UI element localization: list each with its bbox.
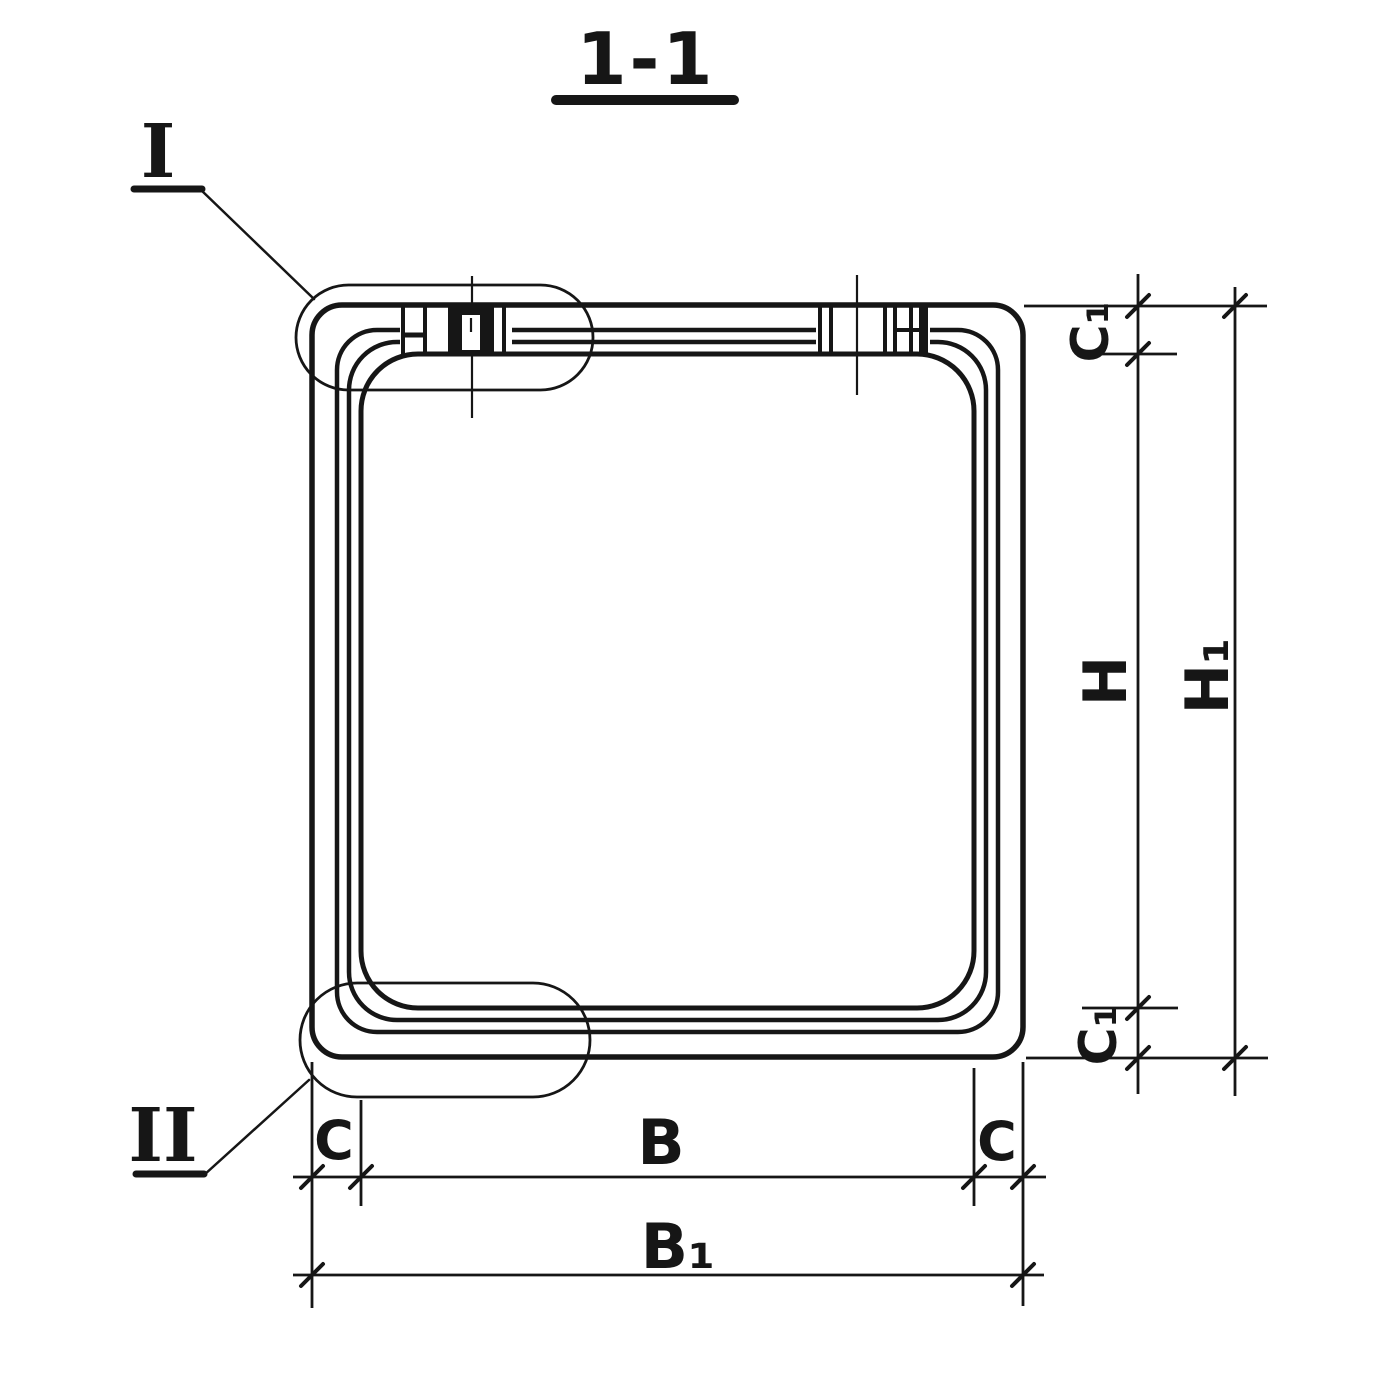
detail-2-label: II — [128, 1093, 197, 1179]
dimension-ticks — [301, 295, 1246, 1286]
frame-inner-contour-2 — [349, 342, 986, 1020]
dim-label-c1-top: C₁ — [1061, 302, 1121, 363]
dim-label-b: B — [637, 1106, 684, 1179]
dim-label-c1-bottom: C₁ — [1069, 1005, 1129, 1066]
extension-lines — [312, 306, 1268, 1308]
detail-1-label: I — [141, 109, 176, 195]
joint-right-end-block — [919, 307, 928, 356]
dim-label-c-right: C — [977, 1110, 1017, 1173]
section-drawing: 1-1 I II — [0, 0, 1374, 1379]
detail-2-leader-line — [204, 1080, 309, 1175]
frame-outer-contour — [312, 305, 1023, 1057]
dim-label-c-left: C — [314, 1109, 354, 1172]
dim-label-h: H — [1071, 656, 1141, 706]
frame-inner-contour-3 — [361, 354, 974, 1008]
detail-1-leader-line — [200, 189, 314, 299]
section-title: 1-1 — [576, 17, 715, 101]
dim-label-b1: B₁ — [641, 1210, 715, 1283]
dim-label-h1: H₁ — [1173, 638, 1243, 715]
frame-inner-contour-1 — [337, 330, 998, 1032]
drawing-sheet: 1-1 I II — [0, 0, 1374, 1379]
detail-2-circle — [300, 983, 590, 1097]
